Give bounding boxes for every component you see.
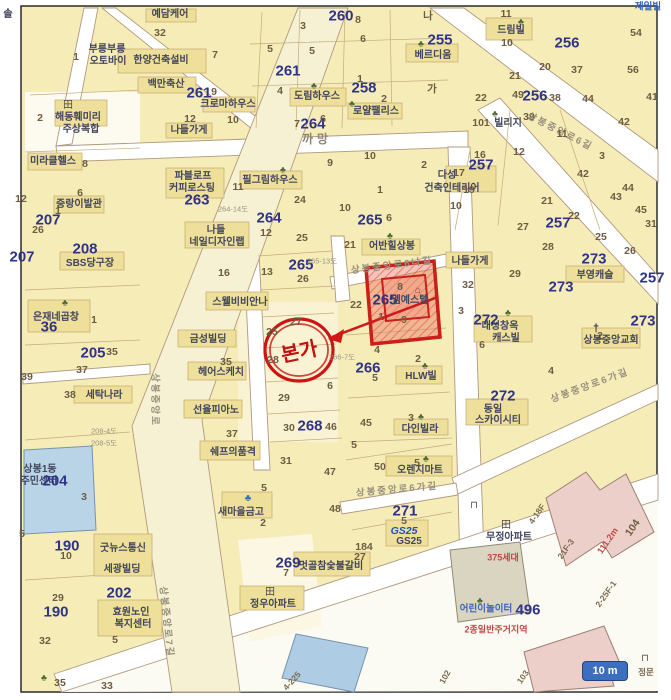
map-canvas	[0, 0, 671, 700]
playground-block	[450, 542, 530, 622]
cadastral-map[interactable]: 본가 10 m 솔321부릉부릉오토바이예담케어한양건축설비백만축산72619크…	[0, 0, 671, 700]
community-center-building	[24, 446, 96, 534]
scale-badge: 10 m	[582, 661, 628, 681]
scale-label: 10 m	[592, 665, 617, 677]
highlighted-parcel	[366, 261, 440, 344]
